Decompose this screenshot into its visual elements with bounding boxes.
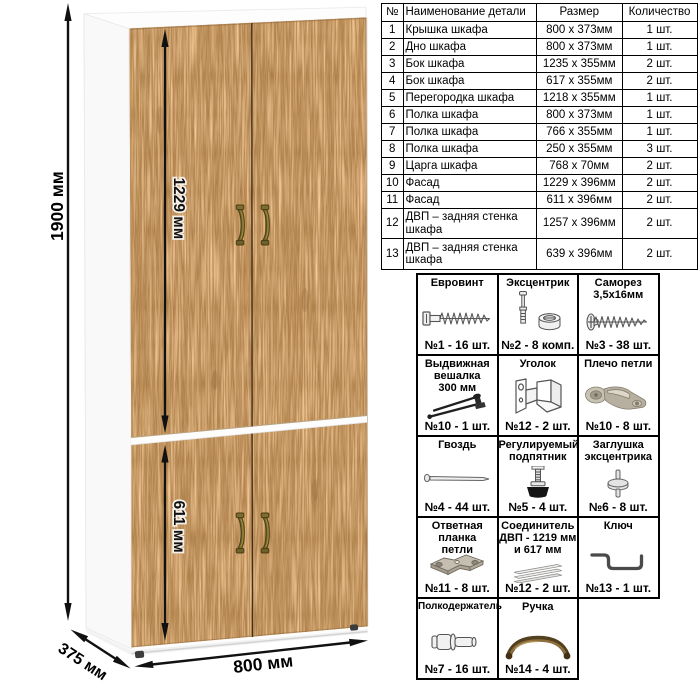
svg-text:375 мм: 375 мм bbox=[55, 640, 110, 684]
svg-text:1900 мм: 1900 мм bbox=[47, 171, 67, 241]
svg-text:611 мм: 611 мм bbox=[170, 501, 187, 553]
svg-text:1229 мм: 1229 мм bbox=[170, 178, 187, 240]
